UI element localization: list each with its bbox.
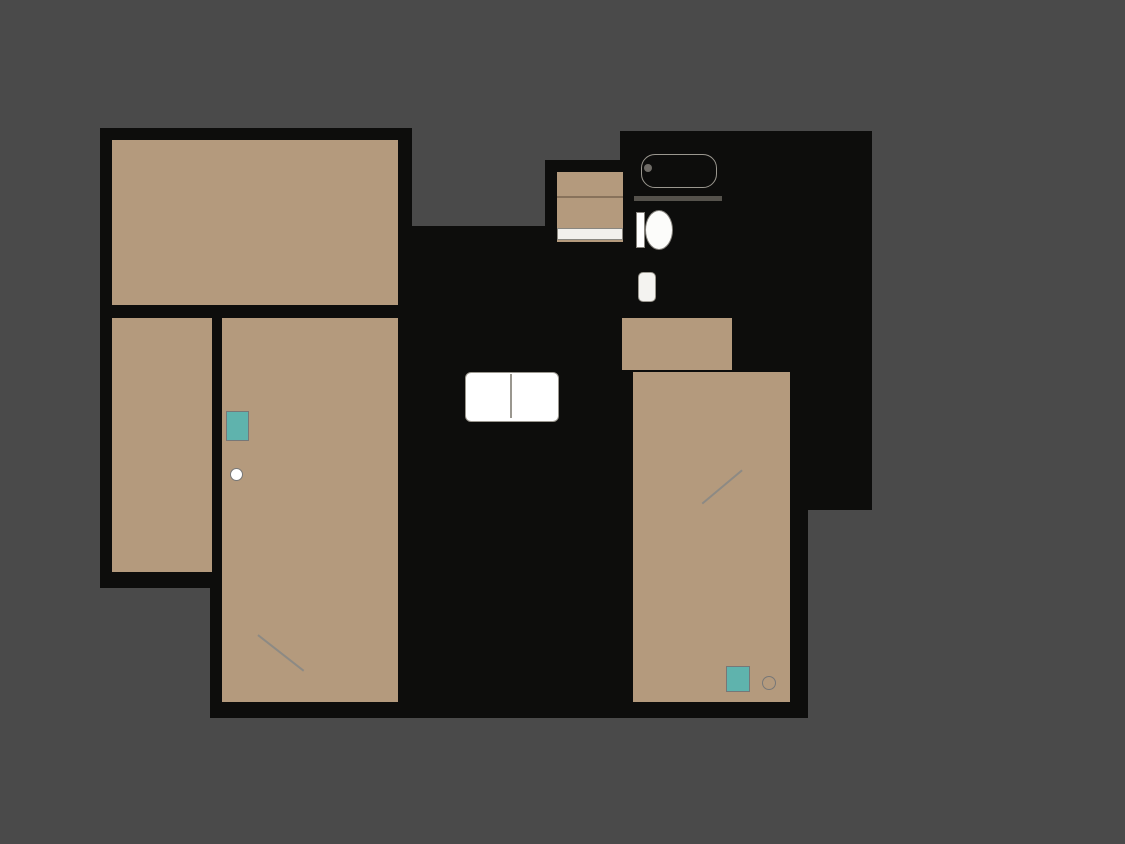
sofa-pillow	[0, 92, 28, 117]
floor-storage-room	[112, 140, 398, 305]
dresser-kettle	[230, 468, 243, 481]
sofa-seat-divider	[510, 374, 512, 418]
toilet-tank	[636, 212, 645, 248]
armchair-pillow	[0, 778, 32, 807]
sofa-long-left	[0, 164, 46, 360]
striped-cushion	[0, 390, 35, 425]
dresser-decor	[226, 411, 249, 441]
floor-cloakroom	[732, 145, 860, 370]
floor-bedroom-3	[633, 372, 790, 702]
sink-basin	[638, 272, 656, 302]
plant-icon	[0, 488, 16, 504]
side-table	[0, 114, 34, 148]
armchair-pillow	[0, 692, 32, 721]
floor-equipment-room	[798, 372, 860, 484]
tv-cabinet-strip	[0, 804, 18, 844]
stairs-step	[557, 228, 623, 240]
striped-cushion	[0, 421, 35, 455]
armchair	[0, 632, 50, 694]
toilet	[645, 210, 673, 250]
armchair	[0, 718, 50, 780]
floor-plan-canvas: 储物间 17.4m² 楼梯 1.5m² 过道 6.3m² 主卫 6.7m² 衣帽…	[0, 0, 1125, 844]
side-table	[0, 454, 34, 488]
bath-partition	[634, 196, 722, 201]
floor-storeroom	[112, 318, 212, 572]
plant-on-console	[0, 594, 20, 632]
tv-console	[0, 504, 30, 594]
floor-hallway-small	[622, 318, 732, 370]
desk-item	[762, 676, 776, 690]
sofa-three-seat	[0, 0, 112, 74]
floor-living-room	[410, 240, 622, 702]
bathtub-inner	[641, 154, 717, 188]
plant-icon	[0, 148, 16, 164]
stairs-line	[557, 196, 623, 198]
sofa-seat	[465, 372, 559, 422]
bathtub-faucet	[644, 164, 652, 172]
floor-bedroom-2	[222, 318, 398, 702]
desk-decor	[726, 666, 750, 692]
